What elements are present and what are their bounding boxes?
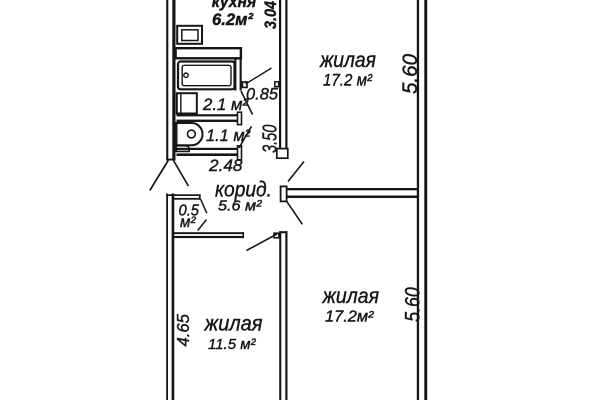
svg-text:11.5 м²: 11.5 м² (208, 336, 256, 353)
svg-text:5.6 м²: 5.6 м² (218, 198, 263, 215)
svg-text:3.04: 3.04 (262, 1, 280, 29)
svg-text:4.65: 4.65 (173, 314, 193, 347)
svg-text:2.48: 2.48 (208, 157, 243, 175)
svg-text:1.1 м²: 1.1 м² (206, 126, 251, 145)
svg-text:5.60: 5.60 (401, 287, 424, 322)
svg-text:жилая: жилая (204, 312, 263, 335)
svg-text:17.2м²: 17.2м² (325, 308, 374, 325)
svg-text:2.1 м²: 2.1 м² (202, 95, 249, 114)
svg-text:0.85: 0.85 (246, 84, 279, 103)
svg-text:жилая: жилая (319, 49, 376, 72)
svg-text:17.2 м²: 17.2 м² (323, 71, 372, 89)
svg-text:м²: м² (180, 214, 196, 231)
svg-text:5.60: 5.60 (399, 54, 422, 94)
svg-text:жилая: жилая (322, 285, 379, 308)
svg-text:6.2м²: 6.2м² (212, 10, 254, 29)
